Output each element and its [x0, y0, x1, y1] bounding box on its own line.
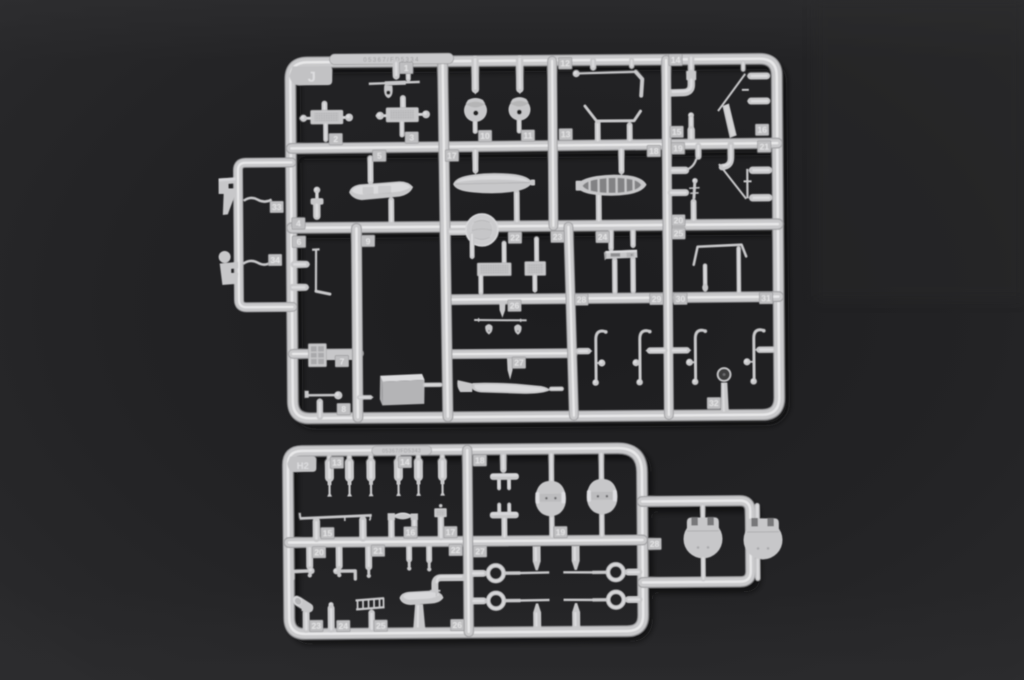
svg-text:15: 15	[672, 127, 682, 137]
svg-text:28: 28	[577, 295, 587, 305]
svg-text:14: 14	[400, 457, 410, 467]
svg-text:23: 23	[553, 232, 563, 242]
svg-text:6: 6	[297, 237, 302, 247]
svg-text:2: 2	[333, 134, 338, 144]
svg-text:23: 23	[311, 621, 321, 631]
svg-text:24: 24	[338, 621, 348, 631]
svg-text:H2: H2	[297, 461, 309, 472]
svg-text:7: 7	[340, 356, 345, 366]
svg-text:16: 16	[406, 528, 416, 538]
svg-text:27: 27	[514, 358, 524, 368]
svg-text:25: 25	[674, 228, 684, 238]
svg-text:15: 15	[323, 528, 333, 538]
svg-text:32: 32	[709, 398, 719, 408]
svg-text:18: 18	[475, 455, 485, 465]
svg-text:26: 26	[510, 301, 520, 311]
svg-text:24: 24	[598, 232, 608, 242]
svg-text:10: 10	[480, 131, 490, 141]
svg-text:J: J	[308, 70, 316, 86]
svg-text:16: 16	[757, 125, 767, 135]
svg-text:21: 21	[373, 546, 383, 556]
svg-text:25: 25	[376, 621, 386, 631]
svg-text:20: 20	[314, 547, 324, 557]
svg-text:1: 1	[404, 63, 409, 73]
svg-text:14: 14	[671, 55, 681, 65]
svg-text:27: 27	[475, 546, 485, 556]
svg-text:19: 19	[556, 527, 566, 537]
svg-text:11: 11	[523, 131, 532, 141]
svg-text:8: 8	[341, 404, 346, 414]
svg-text:34: 34	[270, 255, 280, 265]
svg-text:3: 3	[409, 133, 414, 143]
svg-text:31: 31	[761, 293, 771, 303]
svg-text:13: 13	[332, 458, 342, 468]
svg-text:30: 30	[676, 294, 686, 304]
svg-text:9: 9	[366, 236, 371, 246]
svg-text:17: 17	[447, 151, 457, 161]
svg-text:5: 5	[377, 151, 382, 161]
svg-text:12: 12	[560, 58, 570, 68]
svg-text:29: 29	[652, 294, 662, 304]
svg-text:20: 20	[674, 215, 684, 225]
svg-text:05367/FD5343: 05367/FD5343	[382, 448, 421, 454]
svg-text:26: 26	[452, 620, 462, 630]
svg-text:17: 17	[446, 527, 456, 537]
svg-text:22: 22	[451, 545, 461, 555]
svg-text:13: 13	[561, 129, 571, 139]
svg-text:18: 18	[649, 146, 659, 156]
svg-text:4: 4	[296, 218, 301, 228]
svg-text:33: 33	[272, 202, 282, 212]
svg-text:28: 28	[650, 539, 660, 549]
svg-text:19: 19	[673, 143, 683, 153]
svg-text:22: 22	[510, 233, 520, 243]
svg-text:21: 21	[759, 142, 769, 152]
